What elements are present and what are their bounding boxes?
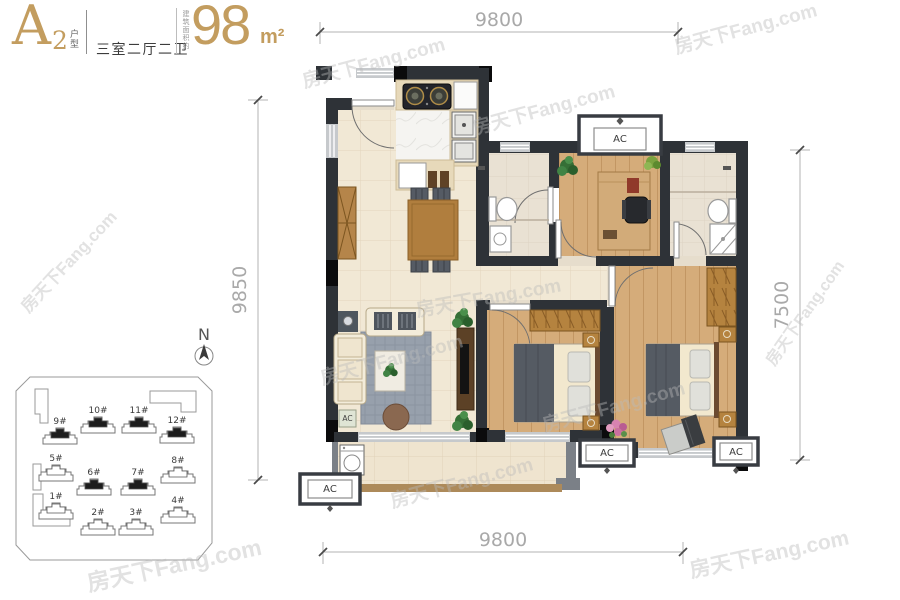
svg-text:10#: 10#: [89, 406, 108, 416]
svg-text:9800: 9800: [479, 529, 527, 551]
pillow: [568, 386, 590, 416]
window: [356, 68, 394, 78]
wardrobe: [530, 310, 600, 331]
dimension-bottom: 9800: [319, 529, 687, 564]
kitchen-sink: [452, 112, 476, 162]
pillow: [690, 382, 710, 410]
svg-text:6#: 6#: [87, 468, 100, 478]
ac-platform-left: AC: [300, 474, 360, 512]
svg-text:11#: 11#: [130, 406, 149, 416]
svg-text:2#: 2#: [91, 508, 104, 518]
ac-platform-top: AC: [579, 116, 661, 154]
shower: [710, 224, 736, 254]
site-building: 12#: [160, 416, 194, 443]
bed: [514, 342, 600, 424]
svg-text:12#: 12#: [168, 416, 187, 426]
end-table: [338, 311, 358, 332]
window: [505, 432, 570, 442]
ac-platform-bedroom-2: AC: [714, 438, 758, 474]
site-building: 5#: [39, 454, 73, 481]
svg-text:N: N: [198, 325, 210, 344]
svg-text:9850: 9850: [229, 266, 251, 314]
site-building: 10#: [81, 406, 115, 433]
balcony-sliding-door: [358, 432, 470, 442]
site-building: 3#: [119, 508, 153, 535]
window: [500, 142, 530, 152]
svg-text:AC: AC: [323, 484, 337, 495]
toilet: [489, 197, 517, 221]
floor-plan-drawing: AC: [0, 0, 900, 600]
toilet: [708, 199, 736, 223]
indoor-ac-unit: AC: [339, 410, 356, 427]
entry-foyer: [338, 187, 356, 259]
headboard: [595, 342, 600, 424]
site-building: 4#: [161, 496, 195, 523]
compass-needle-icon: [199, 344, 209, 360]
balcony-floor: [338, 442, 573, 487]
tv: [460, 344, 469, 394]
wash-basin: [490, 226, 511, 252]
dining-table: [408, 200, 458, 260]
svg-text:AC: AC: [342, 414, 352, 423]
desk-chair: [622, 197, 651, 223]
site-building: 6#: [77, 468, 111, 495]
faucet-icon: [478, 166, 485, 170]
pillow: [568, 352, 590, 382]
nightstand: [719, 412, 736, 427]
ac-platform-bedroom-1: AC: [580, 440, 634, 474]
pillow: [690, 350, 710, 378]
nightstand: [583, 333, 599, 347]
svg-text:9800: 9800: [475, 9, 523, 31]
dimension-left: 9850: [229, 96, 268, 484]
svg-text:5#: 5#: [49, 454, 62, 464]
fridge: [454, 82, 477, 109]
balcony-railing: [334, 484, 562, 492]
svg-text:7#: 7#: [131, 468, 144, 478]
bed: [646, 342, 719, 418]
window: [326, 124, 338, 158]
svg-text:AC: AC: [613, 134, 627, 145]
kitchen-cabinet: [440, 171, 449, 188]
headboard: [714, 342, 719, 418]
dishwasher: [399, 163, 426, 188]
nightstand: [719, 327, 736, 342]
window: [685, 142, 715, 152]
svg-text:9#: 9#: [53, 417, 66, 427]
svg-text:8#: 8#: [171, 456, 184, 466]
svg-text:1#: 1#: [49, 492, 62, 502]
svg-text:AC: AC: [600, 448, 614, 459]
balcony: [340, 445, 364, 475]
kitchen-cabinet: [428, 171, 437, 188]
washing-machine: [340, 445, 364, 475]
site-building: 11#: [122, 406, 156, 433]
floor-plan-page: A 2 户型 三室二厅二卫 建筑面积约 98 m² 房天下Fang.com 房天…: [0, 0, 900, 600]
svg-text:7500: 7500: [771, 281, 793, 329]
nightstand: [583, 416, 599, 430]
armchair-stool: [383, 404, 409, 430]
site-building: 1#: [39, 492, 73, 519]
site-building: 7#: [121, 468, 155, 495]
faucet-icon: [723, 166, 731, 170]
dimension-top: 9800: [316, 9, 682, 44]
shoe-cabinet: [338, 187, 356, 259]
site-building: 8#: [161, 456, 195, 483]
dining-area: [408, 188, 458, 272]
site-plan: 9# 10# 11# 12# 5# 6#: [16, 377, 212, 560]
stove: [403, 84, 451, 109]
dimension-right: 7500: [771, 146, 810, 464]
wardrobe: [707, 268, 736, 326]
svg-text:4#: 4#: [171, 496, 184, 506]
svg-text:AC: AC: [729, 447, 743, 458]
north-arrow: N: [195, 325, 213, 365]
coffee-table: [375, 351, 405, 391]
site-building: 2#: [81, 508, 115, 535]
svg-text:3#: 3#: [129, 508, 142, 518]
corridor-floor: [476, 266, 607, 304]
